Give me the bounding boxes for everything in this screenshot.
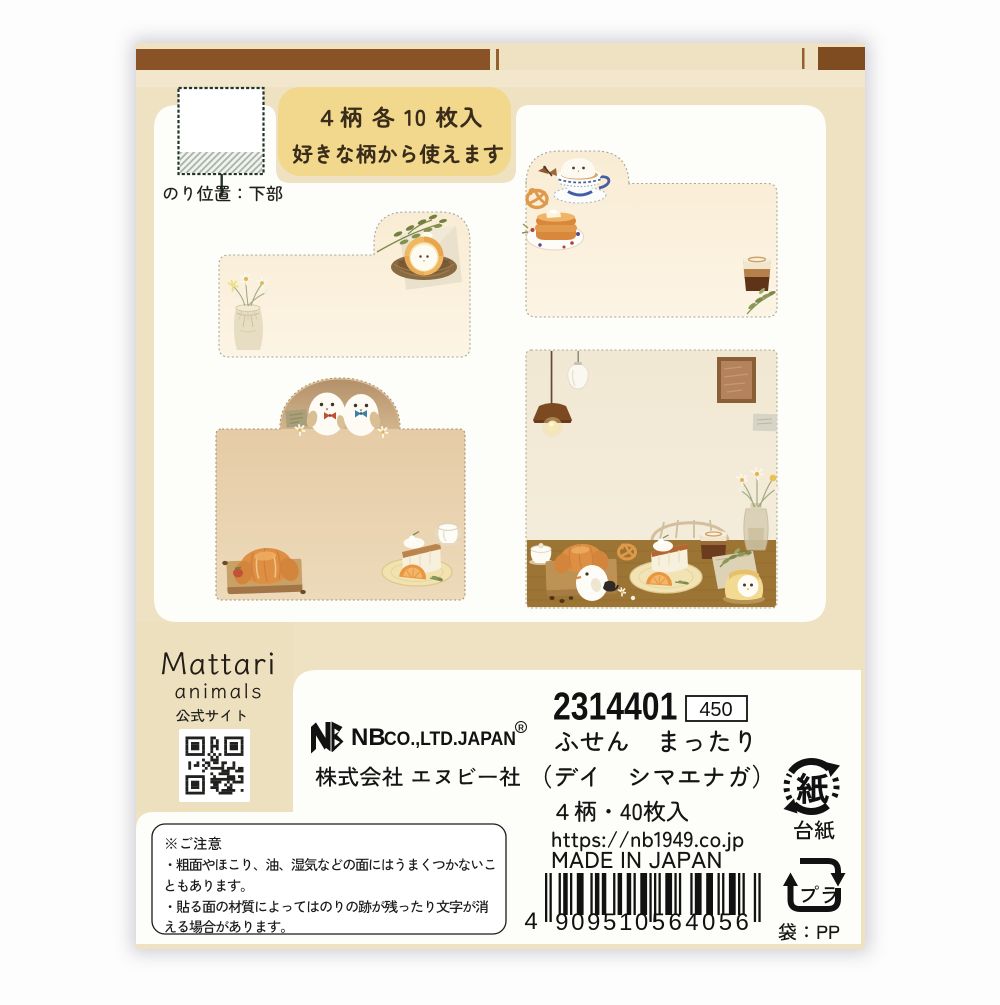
svg-text:4: 4	[524, 908, 537, 935]
svg-text:2314401: 2314401	[553, 686, 677, 728]
svg-text:R: R	[518, 724, 524, 733]
svg-text:450: 450	[699, 699, 732, 721]
svg-text:CO.,LTD.JAPAN: CO.,LTD.JAPAN	[384, 728, 516, 750]
svg-text:564056: 564056	[652, 909, 753, 936]
svg-text:NB: NB	[351, 724, 386, 751]
svg-text:909510: 909510	[555, 909, 651, 936]
